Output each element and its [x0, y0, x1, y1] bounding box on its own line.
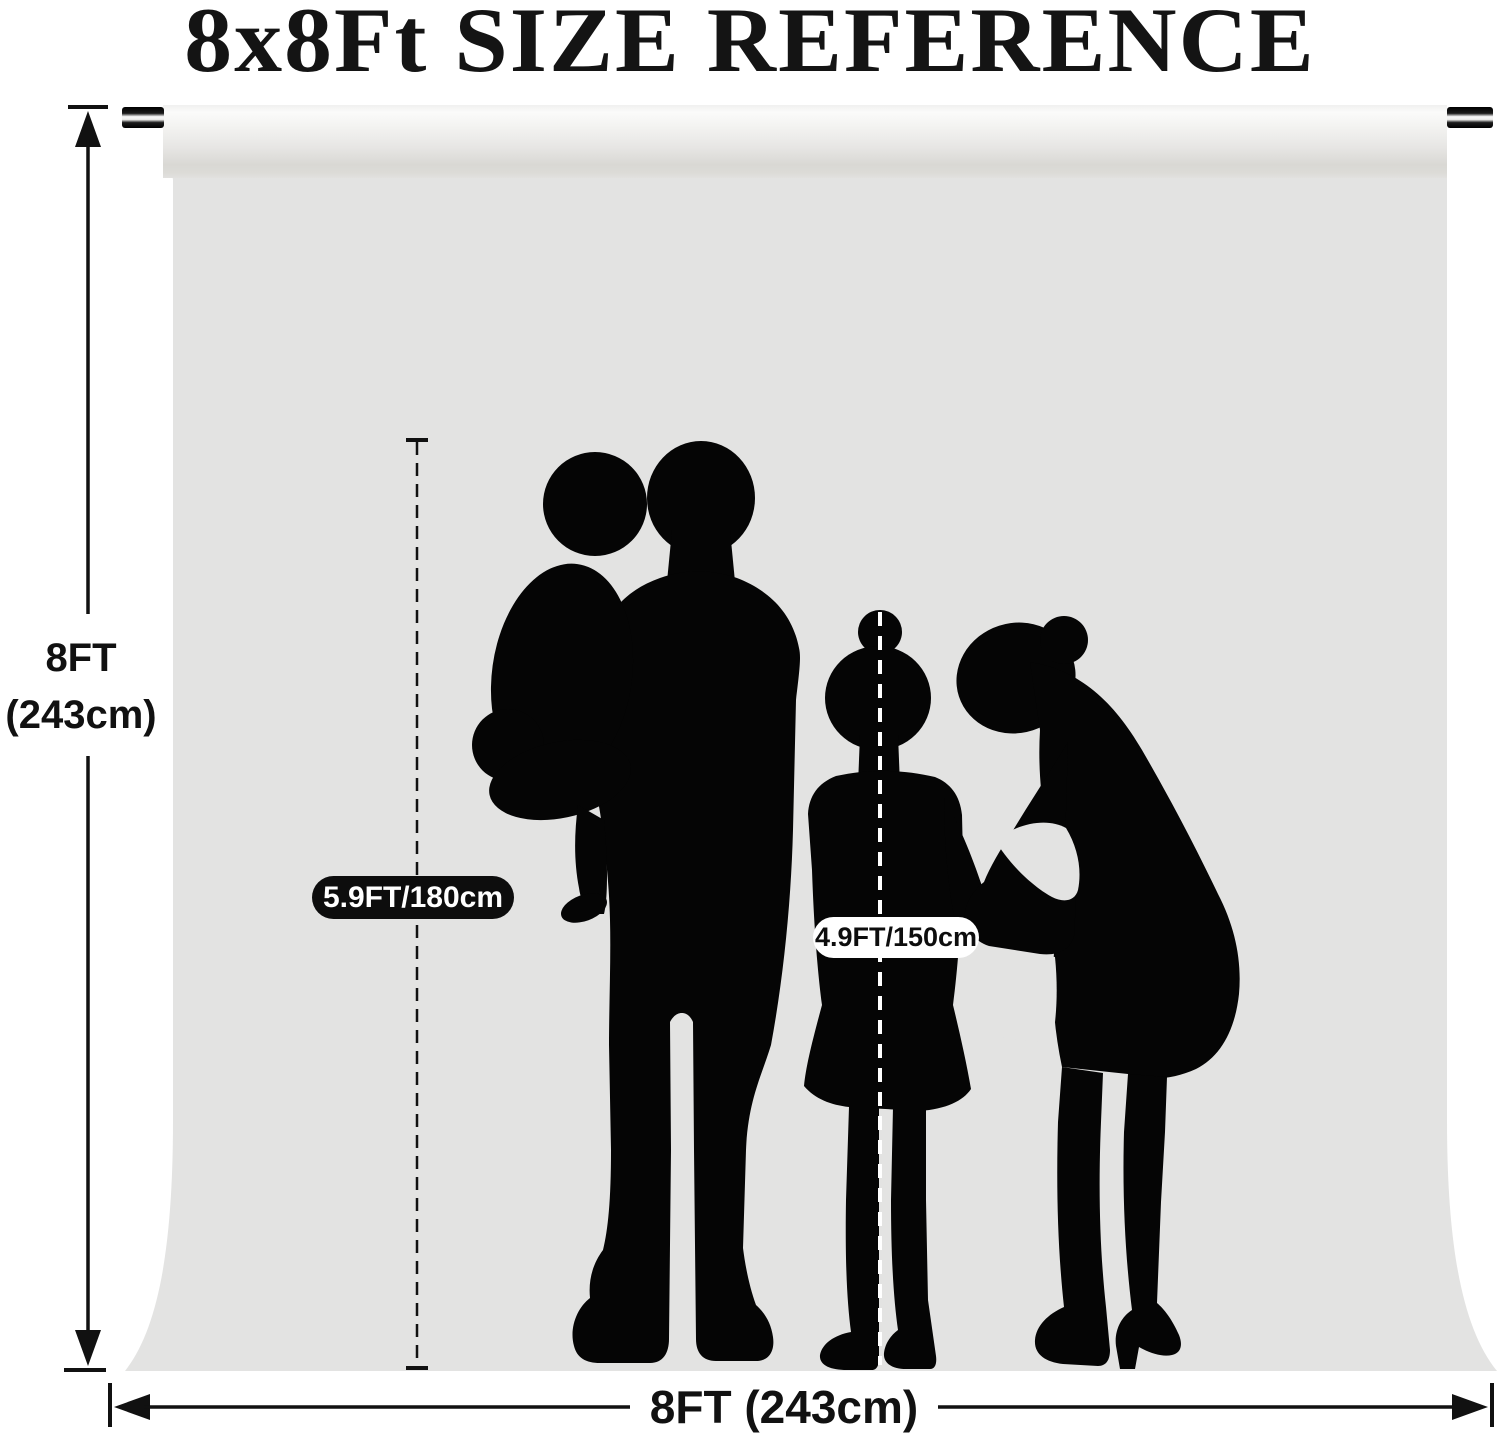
boy-head [543, 452, 647, 556]
arm-gap-lower [979, 947, 1057, 1043]
page-title: 8x8Ft SIZE REFERENCE [0, 0, 1500, 90]
size-reference-diagram [0, 0, 1500, 1429]
arrow-down-icon [75, 1330, 101, 1366]
adult-height-badge: 5.9FT/180cm [312, 876, 514, 919]
child-height-badge: 4.9FT/150cm [813, 917, 979, 958]
backdrop [125, 105, 1497, 1371]
woman-hair-bun [1040, 616, 1088, 664]
backdrop-height-label: 8FT (243cm) [0, 630, 166, 744]
backdrop-roll [163, 105, 1447, 178]
arrow-right-icon [1452, 1394, 1488, 1420]
rod-left-icon [122, 107, 164, 128]
backdrop-sheet [125, 105, 1497, 1371]
backdrop-height-cm: (243cm) [0, 687, 166, 744]
backdrop-height-feet: 8FT [0, 630, 166, 687]
backdrop-width-label: 8FT (243cm) [634, 1381, 934, 1433]
rod-right-icon [1447, 107, 1493, 128]
